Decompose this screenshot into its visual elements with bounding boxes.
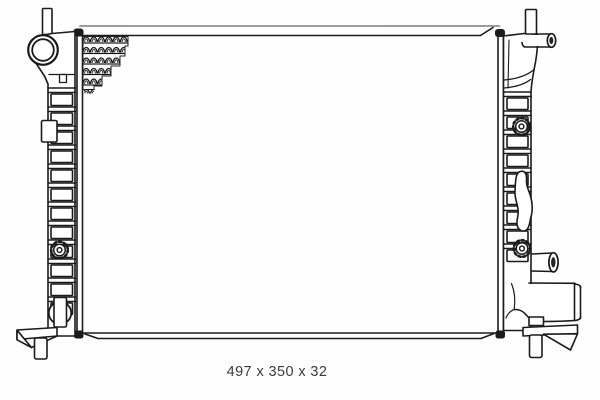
- core-side-plates: [74, 29, 506, 339]
- stub-pipe-mid-right: [532, 253, 558, 272]
- radiator-technical-drawing: [0, 0, 600, 400]
- mounting-pin-top-left: [43, 9, 53, 35]
- mounting-pin-bottom-left: [35, 338, 48, 359]
- screw-detail-right-lower: [514, 240, 531, 257]
- screw-detail-right-upper: [513, 118, 530, 135]
- mounting-pin-bottom-right: [530, 335, 543, 358]
- core-fin-hatch: [83, 37, 128, 94]
- dimensions-caption: 497 x 350 x 32: [227, 364, 328, 380]
- side-clip-left: [42, 121, 58, 143]
- radiator-core: [80, 26, 500, 339]
- bottom-bracket-left: [17, 328, 57, 360]
- bottom-bracket-right: [523, 317, 578, 358]
- screw-detail-left: [51, 242, 68, 259]
- filler-neck: [28, 35, 58, 65]
- left-tank: [17, 9, 76, 360]
- mounting-pin-top-right: [526, 10, 537, 35]
- product-image: 497 x 350 x 32: [0, 0, 600, 400]
